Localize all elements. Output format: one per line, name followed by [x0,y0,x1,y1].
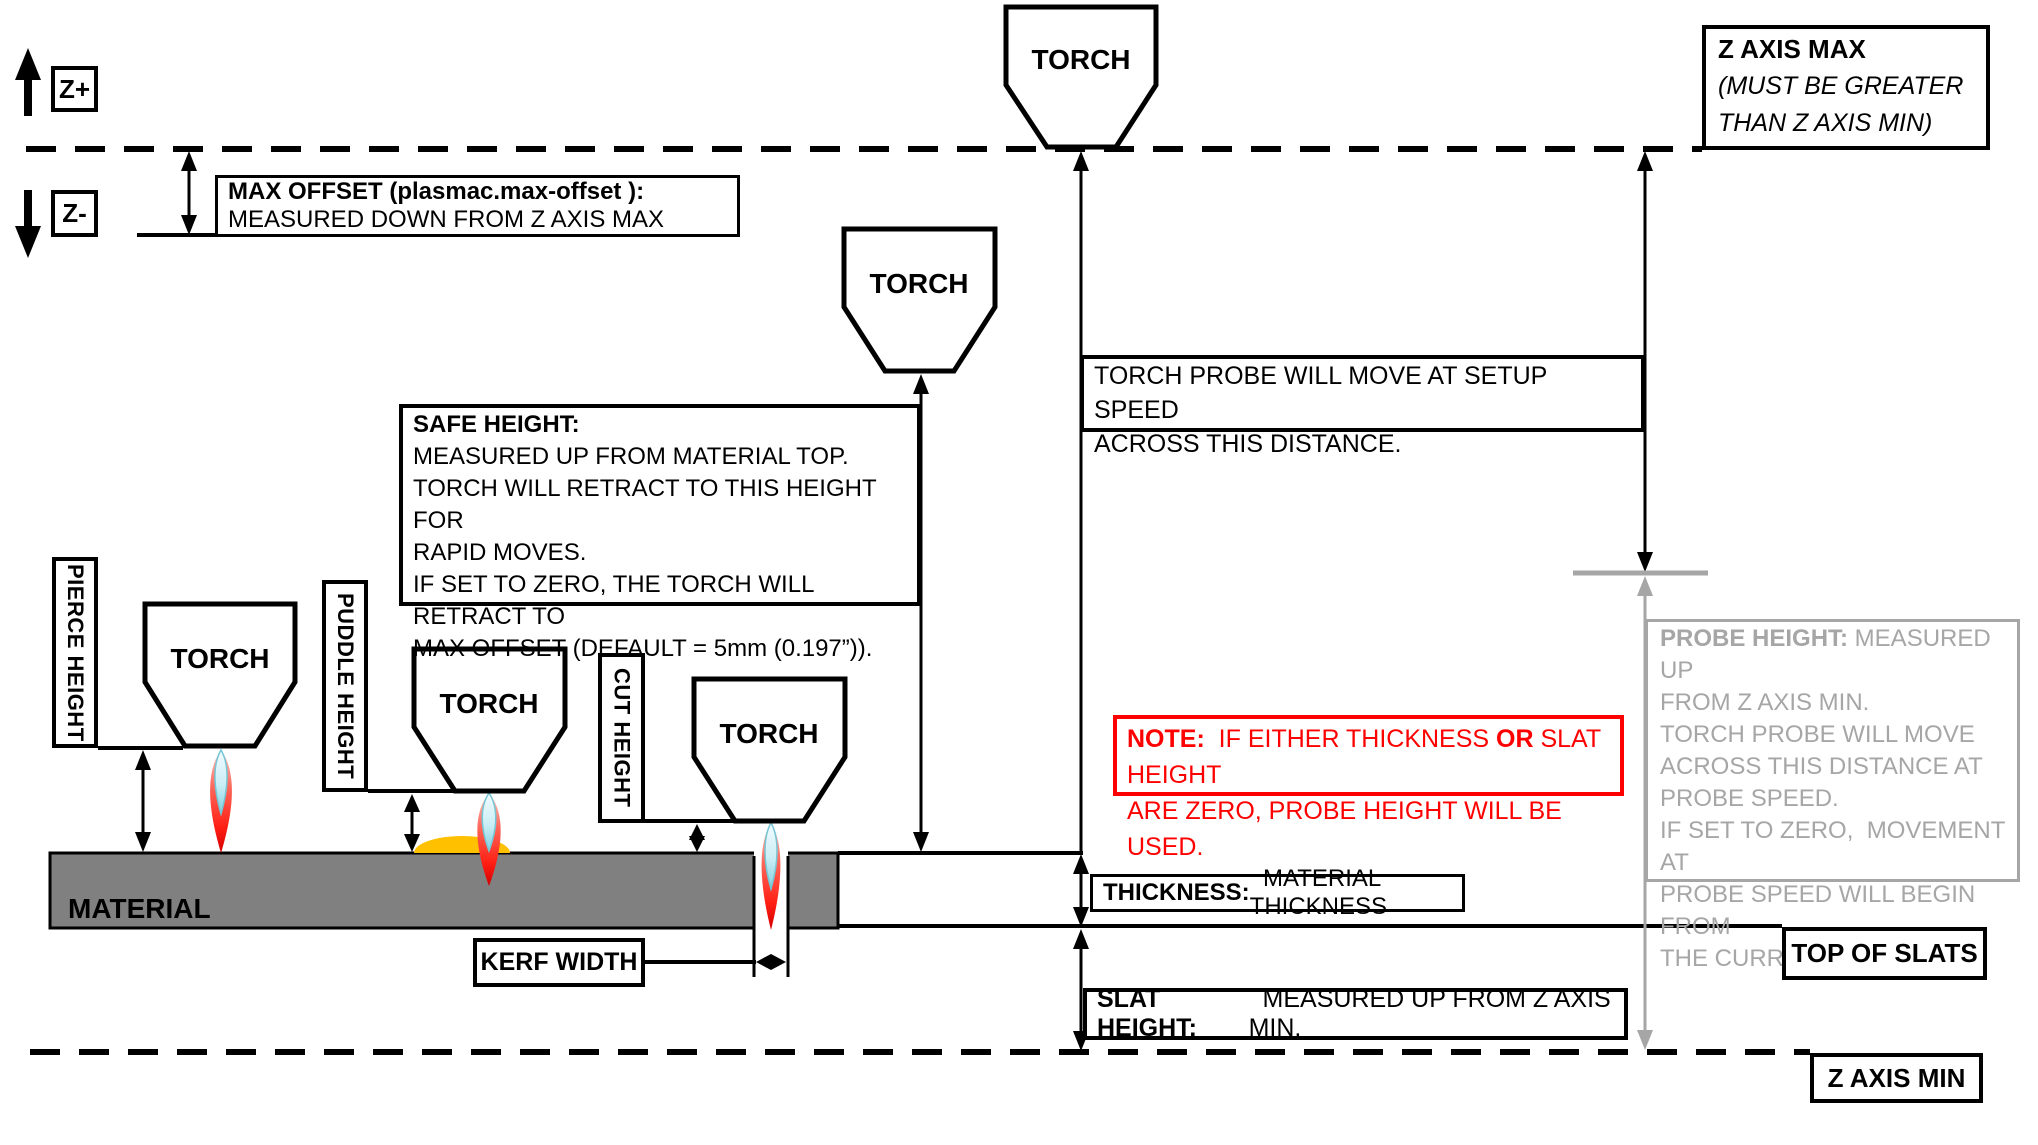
probe-torch-label: TORCH [1031,44,1130,75]
z-minus-arrow-icon [15,190,41,258]
torch-probe-line2: ACROSS THIS DISTANCE. [1094,427,1631,461]
safe-height-torch: TORCH [844,229,995,371]
z-axis-max-note2: THAN Z AXIS MIN) [1718,105,1974,142]
cut-height-label: CUT HEIGHT [609,668,635,807]
slat-height-box: SLAT HEIGHT: MEASURED UP FROM Z AXIS MIN… [1083,988,1628,1040]
pierce-height-label: PIERCE HEIGHT [62,564,88,742]
pierce-height-label-box: PIERCE HEIGHT [52,557,98,748]
plasmac-height-diagram: TORCH TORCH TORCH TORCH TORCH MATERIAL Z… [0,0,2038,1145]
z-axis-min-box: Z AXIS MIN [1810,1053,1983,1103]
top-of-slats-label: TOP OF SLATS [1791,938,1977,969]
probe-height-line4: PROBE SPEED. [1660,783,2005,815]
max-offset-arrow [181,151,197,235]
cut-height-arrow [689,824,705,852]
puddle-height-arrow [404,794,420,852]
note-line1: NOTE: IF EITHER THICKNESS OR SLAT HEIGHT [1127,721,1610,793]
safe-height-line4: IF SET TO ZERO, THE TORCH WILL RETRACT T… [413,569,907,633]
max-offset-title: MAX OFFSET (plasmac.max-offset ): [228,178,727,206]
z-minus-label: Z- [62,198,87,229]
safe-height-line2: TORCH WILL RETRACT TO THIS HEIGHT FOR [413,473,907,537]
kerf-width-label: KERF WIDTH [481,948,638,977]
puddle-torch-label: TORCH [439,688,538,719]
cut-torch: TORCH [694,679,845,821]
safe-height-line1: MEASURED UP FROM MATERIAL TOP. [413,441,907,473]
thickness-box: THICKNESS: MATERIAL THICKNESS [1090,874,1465,912]
probe-height-line5: IF SET TO ZERO, MOVEMENT AT [1660,815,2005,879]
pierce-height-arrow [135,750,151,852]
pierce-torch: TORCH [145,604,295,746]
kerf-width-arrow [756,954,786,970]
safe-height-title: SAFE HEIGHT: [413,409,907,441]
safe-height-box: SAFE HEIGHT: MEASURED UP FROM MATERIAL T… [399,404,921,606]
probe-torch: TORCH [1006,7,1156,147]
probe-height-box: PROBE HEIGHT: MEASURED UP FROM Z AXIS MI… [1645,619,2020,882]
material-label: MATERIAL [68,893,211,924]
z-axis-max-title: Z AXIS MAX [1718,31,1974,68]
z-axis-max-note1: (MUST BE GREATER [1718,68,1974,105]
thickness-arrow [1073,854,1089,927]
top-of-slats-box: TOP OF SLATS [1782,927,1987,980]
z-plus-arrow-icon [15,48,41,116]
z-plus-label: Z+ [59,74,90,105]
max-offset-box: MAX OFFSET (plasmac.max-offset ): MEASUR… [215,175,740,237]
z-axis-min-label: Z AXIS MIN [1828,1063,1966,1094]
note-line2: ARE ZERO, PROBE HEIGHT WILL BE USED. [1127,793,1610,865]
kerf-width-box: KERF WIDTH [473,938,645,987]
torch-probe-box: TORCH PROBE WILL MOVE AT SETUP SPEED ACR… [1080,355,1645,432]
safe-torch-label: TORCH [869,268,968,299]
cut-torch-label: TORCH [719,718,818,749]
safe-height-line3: RAPID MOVES. [413,537,907,569]
note-box: NOTE: IF EITHER THICKNESS OR SLAT HEIGHT… [1113,715,1624,796]
pierce-flame [210,750,232,853]
puddle-height-label: PUDDLE HEIGHT [332,593,358,779]
puddle-height-label-box: PUDDLE HEIGHT [322,580,368,792]
probe-travel-line [1073,151,1089,853]
probe-height-line2: TORCH PROBE WILL MOVE [1660,719,2005,751]
probe-height-title-line: PROBE HEIGHT: MEASURED UP [1660,623,2005,687]
safe-height-line5: MAX OFFSET (DEFAULT = 5mm (0.197”)). [413,633,907,665]
max-offset-desc: MEASURED DOWN FROM Z AXIS MAX [228,206,727,234]
z-minus-box: Z- [51,190,98,237]
cut-height-label-box: CUT HEIGHT [598,653,645,823]
pierce-torch-label: TORCH [170,643,269,674]
torch-probe-line1: TORCH PROBE WILL MOVE AT SETUP SPEED [1094,359,1631,427]
puddle-torch: TORCH [414,649,565,791]
probe-height-line1: FROM Z AXIS MIN. [1660,687,2005,719]
z-axis-max-box: Z AXIS MAX (MUST BE GREATER THAN Z AXIS … [1702,25,1990,150]
probe-height-line3: ACROSS THIS DISTANCE AT [1660,751,2005,783]
z-plus-box: Z+ [51,66,98,112]
